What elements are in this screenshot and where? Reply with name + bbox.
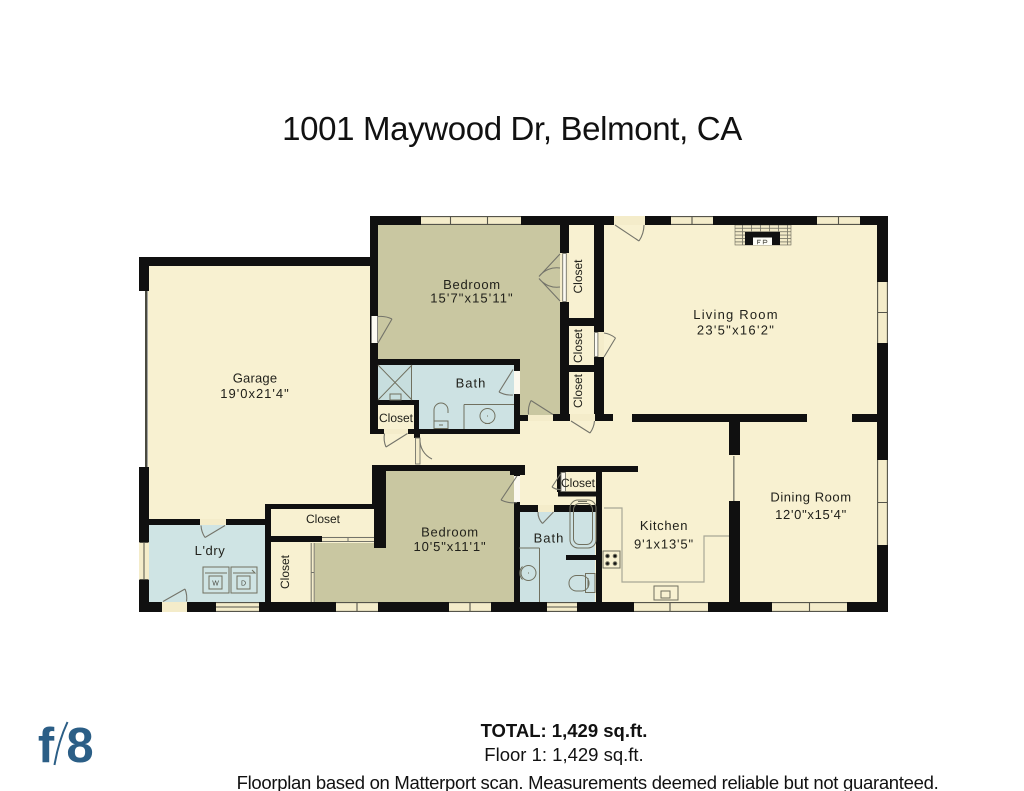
svg-text:Bath: Bath: [534, 531, 565, 546]
svg-text:8: 8: [66, 719, 93, 773]
svg-text:15'7"x15'11": 15'7"x15'11": [430, 291, 514, 306]
svg-text:Bedroom: Bedroom: [421, 525, 479, 540]
svg-text:Closet: Closet: [379, 411, 414, 425]
svg-text:Closet: Closet: [571, 373, 585, 408]
svg-text:D: D: [241, 581, 246, 588]
svg-text:10'5"x11'1": 10'5"x11'1": [413, 539, 486, 554]
svg-text:Bath: Bath: [456, 376, 487, 391]
svg-text:Dining Room: Dining Room: [770, 490, 851, 505]
svg-text:12'0"x15'4": 12'0"x15'4": [775, 507, 847, 522]
svg-text:Living Room: Living Room: [693, 307, 778, 322]
svg-text:Garage: Garage: [233, 371, 278, 386]
svg-text:L'dry: L'dry: [195, 543, 226, 558]
svg-text:Closet: Closet: [571, 259, 585, 294]
svg-text:19'0x21'4": 19'0x21'4": [220, 386, 289, 401]
svg-text:Closet: Closet: [306, 512, 341, 526]
svg-text:Closet: Closet: [278, 554, 292, 589]
svg-text:Closet: Closet: [561, 476, 596, 490]
svg-text:W: W: [212, 581, 219, 588]
svg-text:Kitchen: Kitchen: [640, 518, 688, 533]
svg-text:23'5"x16'2": 23'5"x16'2": [697, 323, 775, 338]
svg-text:9'1x13'5": 9'1x13'5": [634, 537, 694, 552]
svg-text:f: f: [38, 719, 55, 773]
svg-text:Closet: Closet: [571, 328, 585, 363]
